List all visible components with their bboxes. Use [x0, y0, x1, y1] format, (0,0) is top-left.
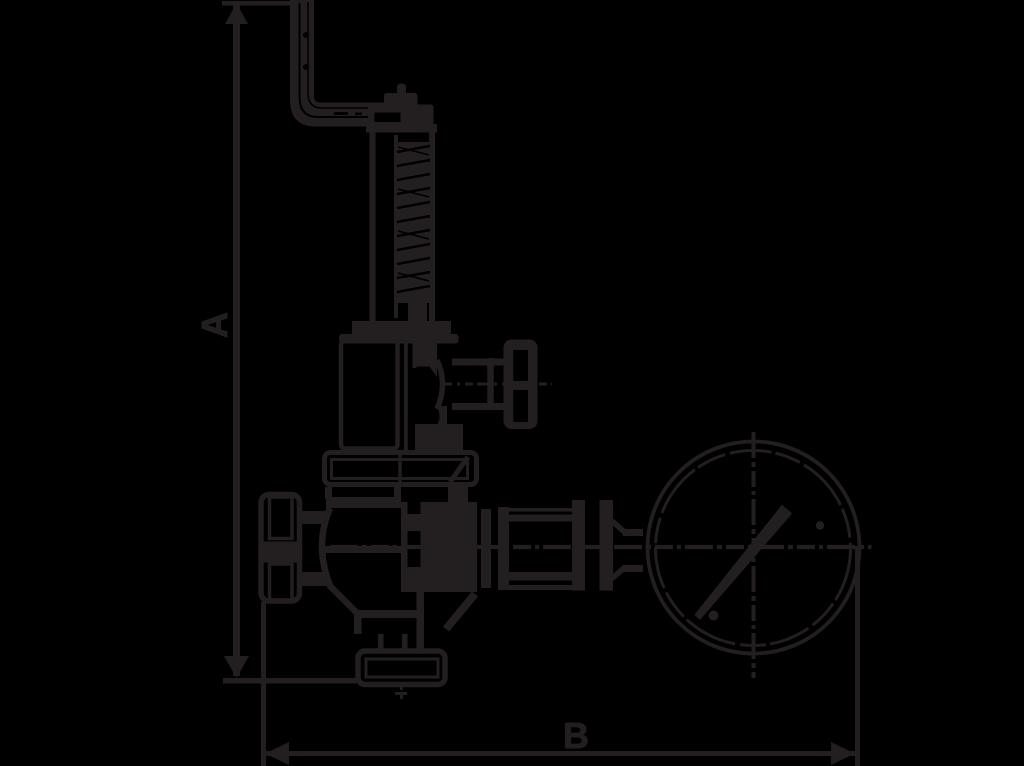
svg-text:A: A	[194, 312, 235, 338]
svg-text:B: B	[563, 715, 589, 756]
